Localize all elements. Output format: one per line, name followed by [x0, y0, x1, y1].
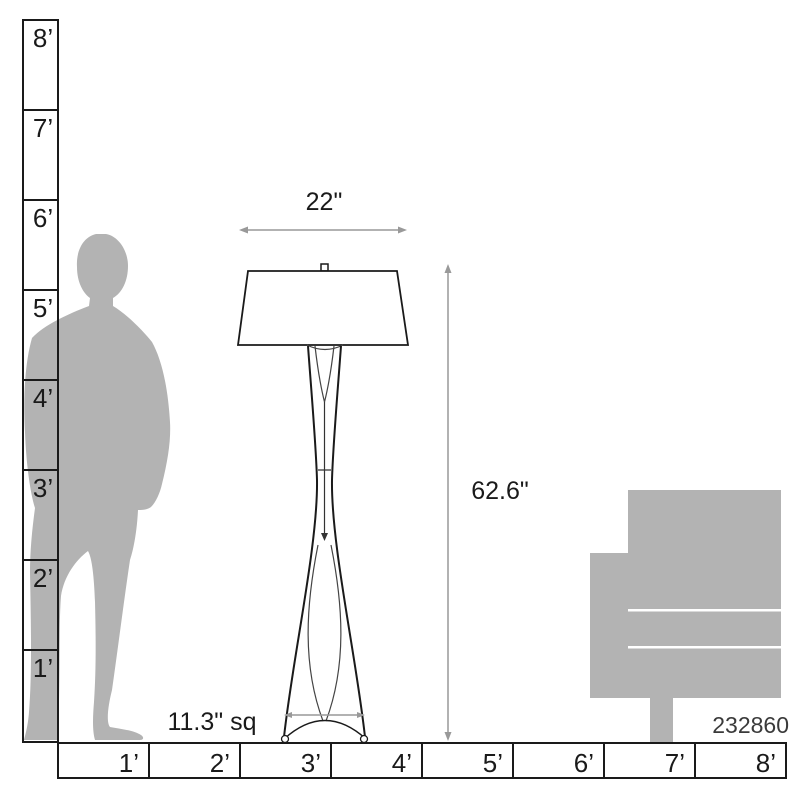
height-arrow-top — [445, 264, 452, 273]
lamp-base-arch — [284, 721, 366, 740]
vruler-label: 5’ — [33, 293, 53, 323]
dimension-diagram: 8’ 7’ 6’ 5’ 4’ 3’ 2’ 1’ 1’ 2’ 3’ 4’ 5’ 6… — [0, 0, 800, 800]
width-arrow-right — [398, 227, 407, 234]
lamp-lower-lens-left — [308, 545, 323, 721]
hruler-label: 8’ — [756, 748, 776, 778]
lamp-upper-lens — [315, 346, 334, 402]
hruler-label: 3’ — [301, 748, 321, 778]
lamp-lower-lens-right — [326, 545, 341, 721]
sofa-seam-bottom — [628, 646, 781, 649]
lamp-foot-left — [282, 736, 289, 743]
vruler-label: 6’ — [33, 203, 53, 233]
hruler-label: 6’ — [574, 748, 594, 778]
vruler-label: 1’ — [33, 653, 53, 683]
lamp-foot-right — [361, 736, 368, 743]
sofa-seam-top — [628, 609, 781, 612]
sofa-body — [628, 490, 781, 698]
sofa-armrest — [590, 553, 628, 698]
hruler-label: 1’ — [119, 748, 139, 778]
diagram-canvas: 8’ 7’ 6’ 5’ 4’ 3’ 2’ 1’ 1’ 2’ 3’ 4’ 5’ 6… — [0, 0, 800, 800]
hruler-label: 7’ — [665, 748, 685, 778]
sofa-silhouette — [590, 490, 781, 743]
vruler-label: 7’ — [33, 113, 53, 143]
base-size-label: 11.3" sq — [167, 708, 256, 736]
horizontal-ruler-labels: 1’ 2’ 3’ 4’ 5’ 6’ 7’ 8’ — [119, 748, 776, 778]
vruler-label: 3’ — [33, 473, 53, 503]
vruler-label: 2’ — [33, 563, 53, 593]
lamp-shade — [238, 271, 408, 345]
width-arrow-left — [239, 227, 248, 234]
product-code: 232860 — [712, 712, 789, 738]
lamp-finial — [321, 264, 328, 271]
height-arrow-bottom — [445, 732, 452, 741]
lamp-rod-arrow — [321, 533, 328, 541]
hruler-label: 2’ — [210, 748, 230, 778]
lamp-height-label: 62.6" — [471, 477, 529, 505]
vruler-label: 4’ — [33, 383, 53, 413]
hruler-label: 4’ — [392, 748, 412, 778]
hruler-label: 5’ — [483, 748, 503, 778]
floor-lamp-drawing — [238, 264, 408, 743]
shade-width-label: 22" — [306, 188, 343, 216]
sofa-leg — [650, 698, 673, 743]
vruler-label: 8’ — [33, 23, 53, 53]
lamp-center-rod — [318, 402, 331, 537]
